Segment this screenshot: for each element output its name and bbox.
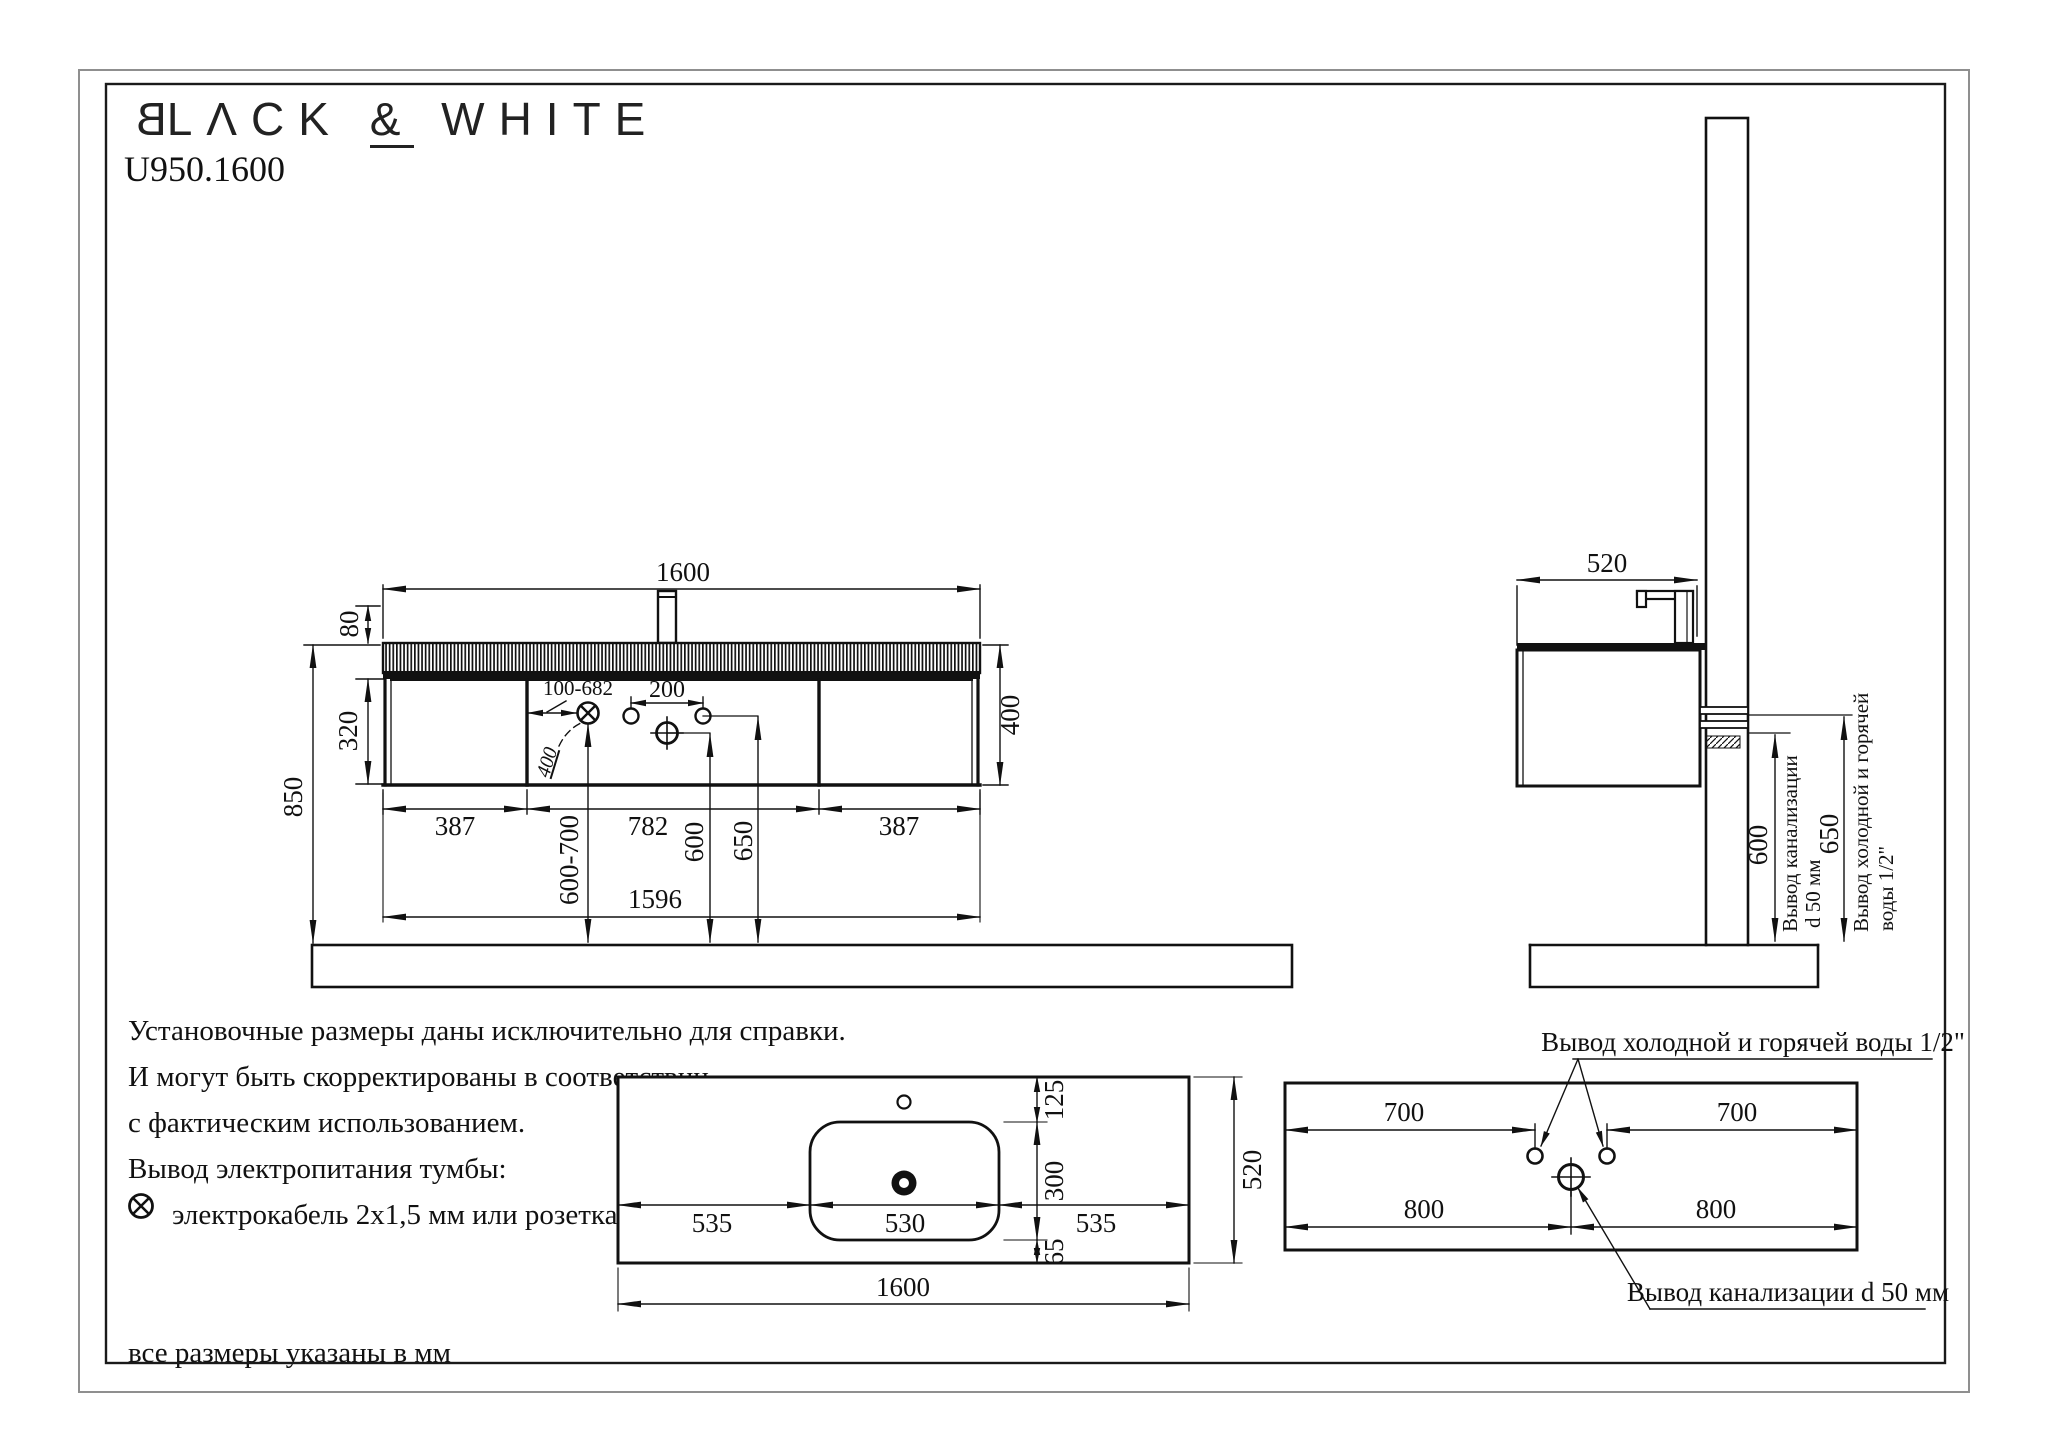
front-socket-depth-leader [559, 722, 583, 746]
wall-dim-water-left-label: 700 [1384, 1097, 1425, 1127]
front-dim-center-label: 782 [628, 811, 669, 841]
drawing-sheet: BLΛCK & WHITE U950.1600 Установочные раз… [0, 0, 2048, 1447]
countertop-dim-right-label: 535 [1076, 1208, 1117, 1238]
drain-stub-hatched [1706, 736, 1740, 748]
front-dim-door-height-label: 320 [333, 711, 363, 752]
front-worktop-ribbed-band [383, 643, 980, 673]
front-faucet-icon [658, 591, 676, 643]
wall-drain-callout-label: Вывод канализации d 50 мм [1627, 1277, 1949, 1307]
front-dim-right-door-label: 387 [879, 811, 920, 841]
front-dim-socket-range [528, 701, 576, 713]
side-view: 520 600 Вывод канализации d 50 мм 650 Вы… [1517, 118, 1898, 987]
front-dim-overall-width [383, 585, 980, 638]
side-water-label-line1: Вывод холодной и горячей [1849, 693, 1873, 932]
note-socket-icon [130, 1195, 153, 1218]
side-water-label-line2: воды 1/2" [1874, 846, 1898, 931]
side-wall-strip [1706, 118, 1748, 945]
front-view: 1600 80 320 850 [278, 557, 1292, 987]
countertop-dim-tap-offset-label: 125 [1039, 1080, 1069, 1121]
countertop-dim-width-label: 1600 [876, 1272, 930, 1302]
countertop-dim-depth [1194, 1077, 1242, 1263]
side-cabinet-body [1517, 650, 1700, 786]
water-hole-left-icon [624, 709, 639, 724]
countertop-dim-depth-label: 520 [1237, 1150, 1267, 1191]
countertop-view: 535 530 535 125 300 65 520 [618, 1077, 1267, 1311]
side-floor-slab [1530, 945, 1818, 987]
sink-drain-icon [892, 1171, 917, 1196]
technical-drawing-canvas: 1600 80 320 850 [0, 0, 2048, 1447]
side-dim-depth [1517, 580, 1697, 645]
front-dim-cabinet-height-label: 400 [995, 695, 1025, 736]
front-dim-socket-height-label: 600-700 [554, 815, 584, 905]
countertop-dim-bowl-depth-label: 300 [1039, 1161, 1069, 1202]
water-stub-2 [1700, 721, 1748, 728]
front-dim-tap-holes-label: 200 [649, 677, 685, 703]
front-dim-drain-height-label: 600 [679, 822, 709, 863]
side-dim-depth-label: 520 [1587, 548, 1628, 578]
front-socket-symbol [578, 703, 599, 724]
front-dim-left-door-label: 387 [435, 811, 476, 841]
front-dim-socket-range-label: 100-682 [543, 676, 613, 700]
wall-water-callout-label: Вывод холодной и горячей воды 1/2" [1541, 1027, 1965, 1057]
front-floor-slab [312, 945, 1292, 987]
side-drain-label-line1: Вывод канализации [1778, 755, 1802, 932]
water-stub [1700, 707, 1748, 714]
wall-dim-drain-left-label: 800 [1404, 1194, 1445, 1224]
wall-dim-drain-right-label: 800 [1696, 1194, 1737, 1224]
front-socket-depth-label: 400 [532, 745, 562, 780]
front-dim-tap-height-label: 80 [334, 611, 364, 638]
wall-outlets-view: 700 700 800 800 Вывод холодной и горячей… [1285, 1027, 1965, 1309]
side-faucet-icon [1637, 591, 1693, 643]
front-dim-mount-width-label: 1596 [628, 884, 682, 914]
side-dim-drain-height-label: 600 [1743, 825, 1773, 866]
front-dim-water-height-label: 650 [728, 821, 758, 862]
side-dim-water-height-label: 650 [1814, 814, 1844, 855]
wall-dim-water-right-label: 700 [1717, 1097, 1758, 1127]
front-dim-total-height-label: 850 [278, 777, 308, 818]
countertop-dim-bowl-label: 530 [885, 1208, 926, 1238]
countertop-dim-left-label: 535 [692, 1208, 733, 1238]
front-dim-width-label: 1600 [656, 557, 710, 587]
countertop-dim-front-offset-label: 65 [1039, 1239, 1069, 1266]
side-drain-label-line2: d 50 мм [1801, 859, 1825, 928]
